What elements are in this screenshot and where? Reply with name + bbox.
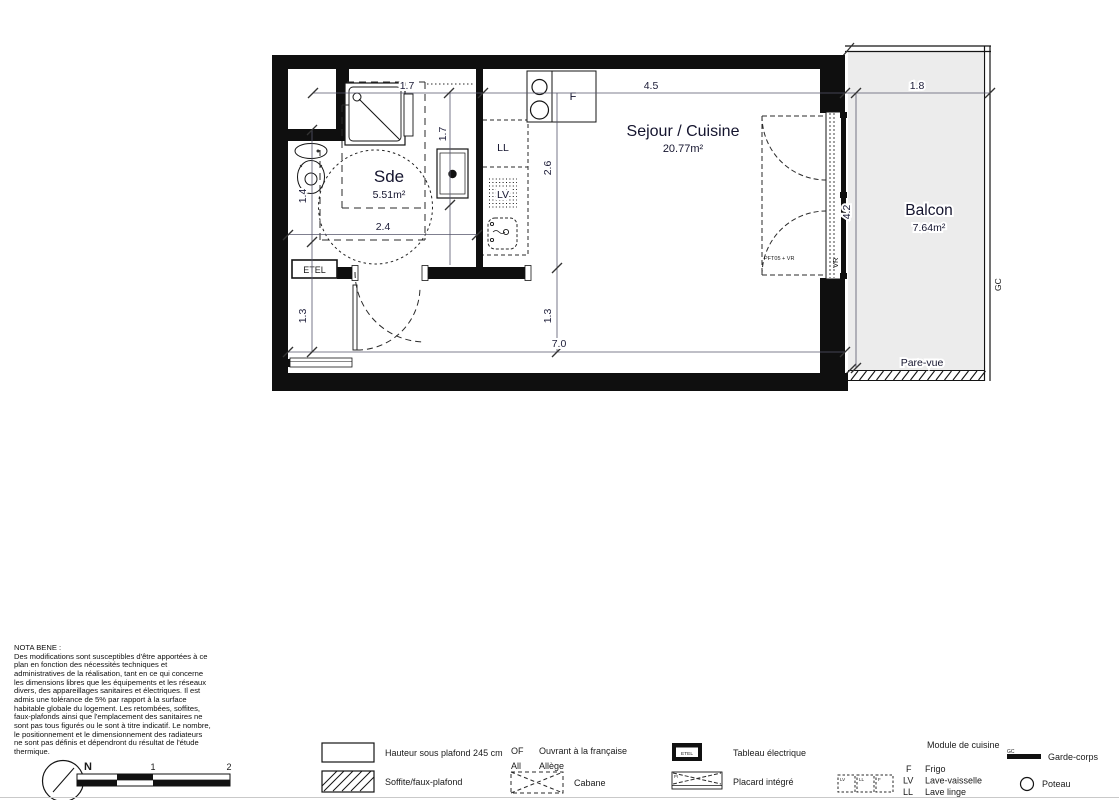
- french-door-swing: [762, 116, 826, 275]
- room-labels: Sde 5.51m² Sejour / Cuisine 20.77m²: [373, 123, 740, 201]
- lv-label: LV: [497, 189, 509, 201]
- scale-bar: 1 2: [77, 762, 232, 786]
- dim-balcony-width: 1.8: [910, 80, 925, 92]
- vanity-basin-dot: [448, 170, 456, 178]
- room-name-sejour: Sejour / Cuisine: [627, 123, 740, 140]
- balcony: Balcon 7.64m² Pare-vue GC: [842, 43, 1003, 381]
- placard-pi-label: PI: [674, 774, 678, 779]
- lv-label: Lave-vaisselle: [925, 776, 982, 786]
- legend: Hauteur sous plafond 245 cm Soffite/faux…: [322, 740, 1099, 797]
- tableau-label: Tableau électrique: [733, 748, 806, 758]
- lv-abbr: LV: [903, 776, 913, 786]
- garde-corps-swatch: [1007, 754, 1041, 759]
- room-area-sejour: 20.77m²: [663, 143, 704, 155]
- tableau-swatch-label: ETEL: [681, 751, 693, 757]
- ll-abbr: LL: [903, 787, 913, 797]
- dim-balcony-depth: 4.2: [841, 205, 853, 220]
- dim-kitchen-depth: 2.6: [542, 161, 554, 176]
- dim-shower-depth: 1.7: [437, 127, 449, 142]
- module-box-ll: LL: [859, 777, 865, 782]
- module-box-f: F: [878, 777, 881, 782]
- dim-sejour-width: 4.5: [644, 80, 659, 92]
- module-box-lv: LV: [840, 777, 845, 782]
- floor-plan-sheet: Balcon 7.64m² Pare-vue GC: [0, 0, 1119, 800]
- garde-corps-label: Garde-corps: [1048, 752, 1099, 762]
- poteau-label: Poteau: [1042, 779, 1071, 789]
- room-name-balcon: Balcon: [905, 202, 952, 219]
- of-label: Ouvrant à la française: [539, 746, 627, 756]
- entrance-door-leaf: [353, 285, 357, 350]
- scale-label-1: 1: [150, 762, 155, 772]
- room-name-sde: Sde: [374, 167, 404, 186]
- compass-north-label: N: [84, 761, 92, 773]
- cabane-label: Cabane: [574, 778, 606, 788]
- toilet-tank: [295, 144, 327, 159]
- pare-vue-hatch: [851, 371, 986, 380]
- dim-shower-width: 1.7: [400, 80, 415, 92]
- of-abbr: OF: [511, 746, 524, 756]
- kitchen: F LL LV: [483, 71, 596, 255]
- balcony-window: PFT05 + VR VR: [762, 112, 847, 279]
- soffit-swatch: [322, 771, 374, 792]
- dim-sde-width: 2.4: [376, 221, 391, 233]
- threshold: [290, 358, 352, 367]
- allege-label: Allège: [539, 761, 564, 771]
- scale-label-2: 2: [226, 762, 231, 772]
- nota-bene-body: Des modifications sont susceptibles d'êt…: [14, 652, 211, 756]
- gc-label: GC: [993, 278, 1003, 291]
- cooktop: [527, 71, 552, 122]
- nota-bene: NOTA BENE : Des modifications sont susce…: [14, 644, 212, 757]
- frigo-label: Frigo: [925, 764, 946, 774]
- dim-wc: 1.4: [297, 189, 309, 204]
- ll-label: LL: [497, 142, 509, 154]
- vr-label: VR: [831, 257, 840, 268]
- soffit-label: Soffite/faux-plafond: [385, 777, 462, 787]
- placard-label: Placard intégré: [733, 777, 794, 787]
- etel-label: ETEL: [303, 265, 326, 275]
- poteau-swatch: [1021, 778, 1034, 791]
- ll-label: Lave linge: [925, 787, 966, 797]
- dim-total-width: 7.0: [552, 338, 567, 350]
- room-area-balcon: 7.64m²: [913, 222, 946, 234]
- pare-vue-label: Pare-vue: [901, 357, 944, 369]
- room-area-sde: 5.51m²: [373, 189, 406, 201]
- bathroom-door-swing: [355, 272, 425, 342]
- dim-hall-mid: 1.3: [542, 309, 554, 324]
- window-ref-label: PFT05 + VR: [764, 256, 794, 262]
- ceiling-height-swatch: [322, 743, 374, 762]
- module-cuisine-title: Module de cuisine: [927, 740, 1000, 750]
- dim-hall-left: 1.3: [297, 309, 309, 324]
- ceiling-height-label: Hauteur sous plafond 245 cm: [385, 748, 503, 758]
- allege-abbr: All: [511, 761, 521, 771]
- frigo-abbr: F: [906, 764, 912, 774]
